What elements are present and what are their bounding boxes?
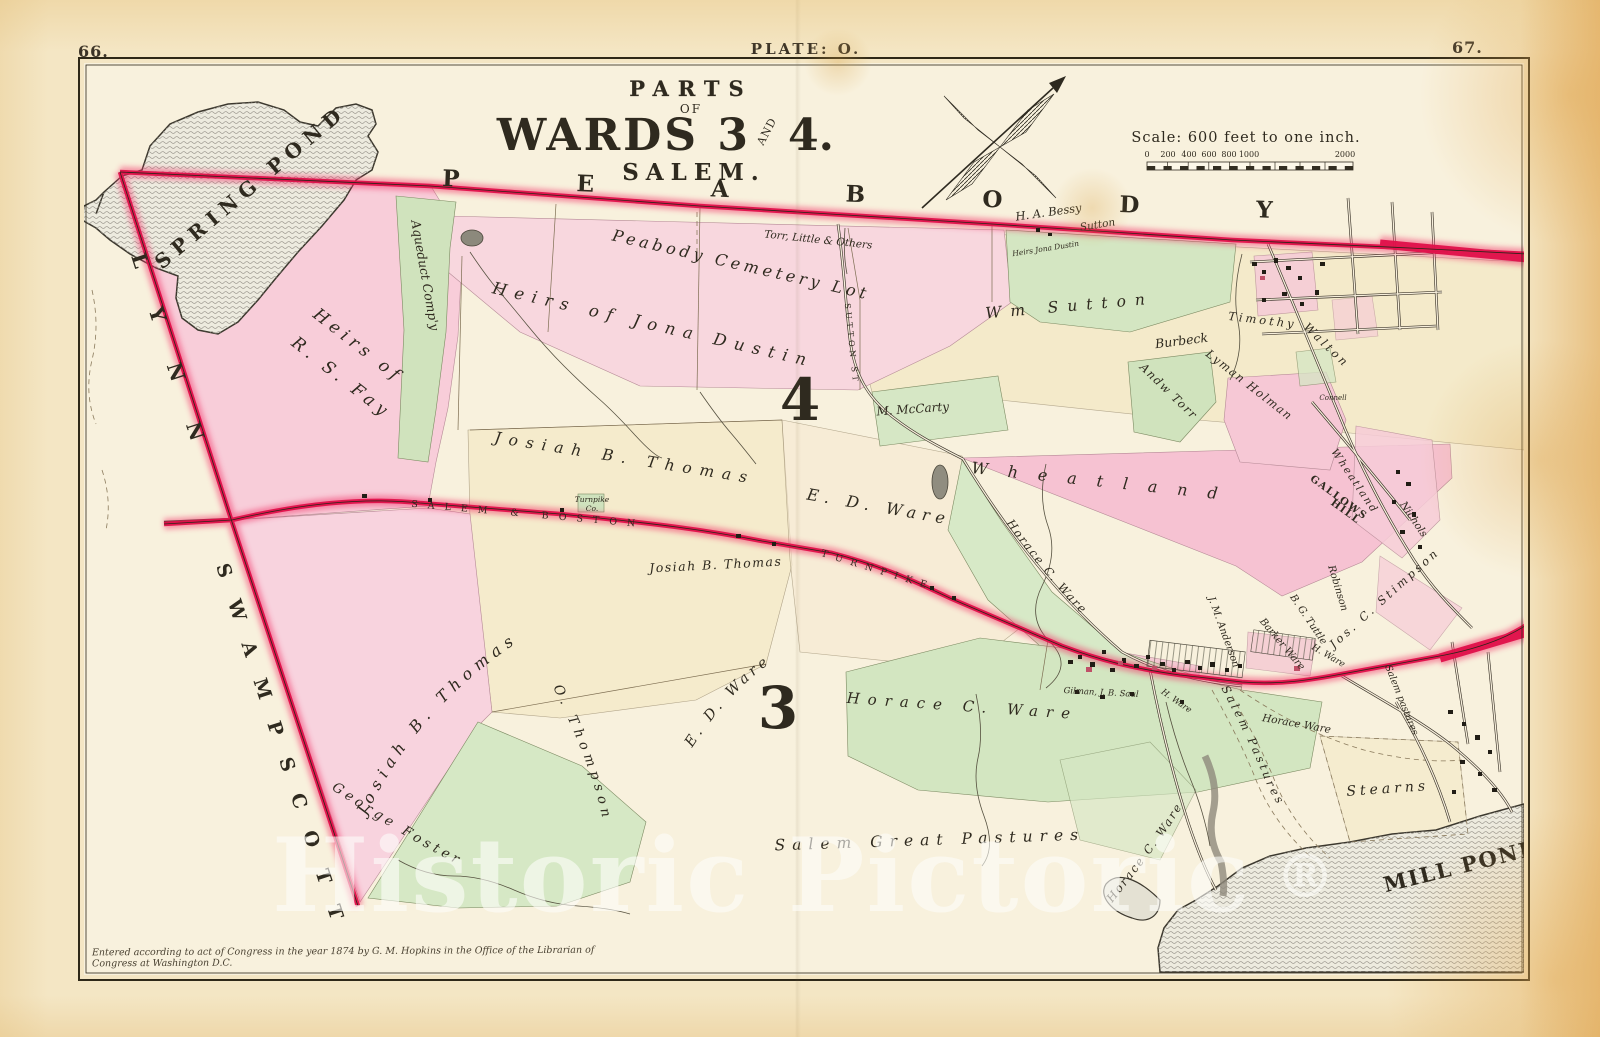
svg-text:2000: 2000 — [1335, 150, 1355, 159]
scale-bar — [1147, 162, 1353, 170]
label-turnpike-co-1: Turnpike — [575, 495, 610, 504]
page-number-left: 66. — [78, 42, 109, 61]
label-turnpike-co-2: Co. — [586, 504, 599, 513]
atlas-page: 66. PLATE: O. 67. — [0, 0, 1600, 1037]
page-number-right: 67. — [1452, 38, 1483, 57]
copyright-line: Entered according to act of Congress in … — [92, 945, 612, 970]
svg-text:800: 800 — [1221, 150, 1236, 159]
svg-text:400: 400 — [1181, 150, 1196, 159]
scale-caption: Scale: 600 feet to one inch. — [1131, 130, 1360, 146]
plate-title: PLATE: O. — [751, 40, 861, 58]
label-connell: Connell — [1319, 394, 1346, 402]
title-wards-right: 4. — [788, 110, 834, 161]
ward-number-4: 4 — [780, 366, 820, 434]
ward-number-3: 3 — [758, 674, 798, 742]
title-parts: PARTS — [629, 76, 752, 101]
svg-text:1000: 1000 — [1239, 150, 1259, 159]
svg-text:200: 200 — [1160, 150, 1175, 159]
map-sheet: PARTS OF WARDS 3 AND 4. SALEM. Scale: 60… — [0, 0, 1600, 1037]
title-wards-left: WARDS 3 — [496, 110, 751, 161]
svg-text:0: 0 — [1144, 150, 1149, 159]
svg-text:600: 600 — [1201, 150, 1216, 159]
